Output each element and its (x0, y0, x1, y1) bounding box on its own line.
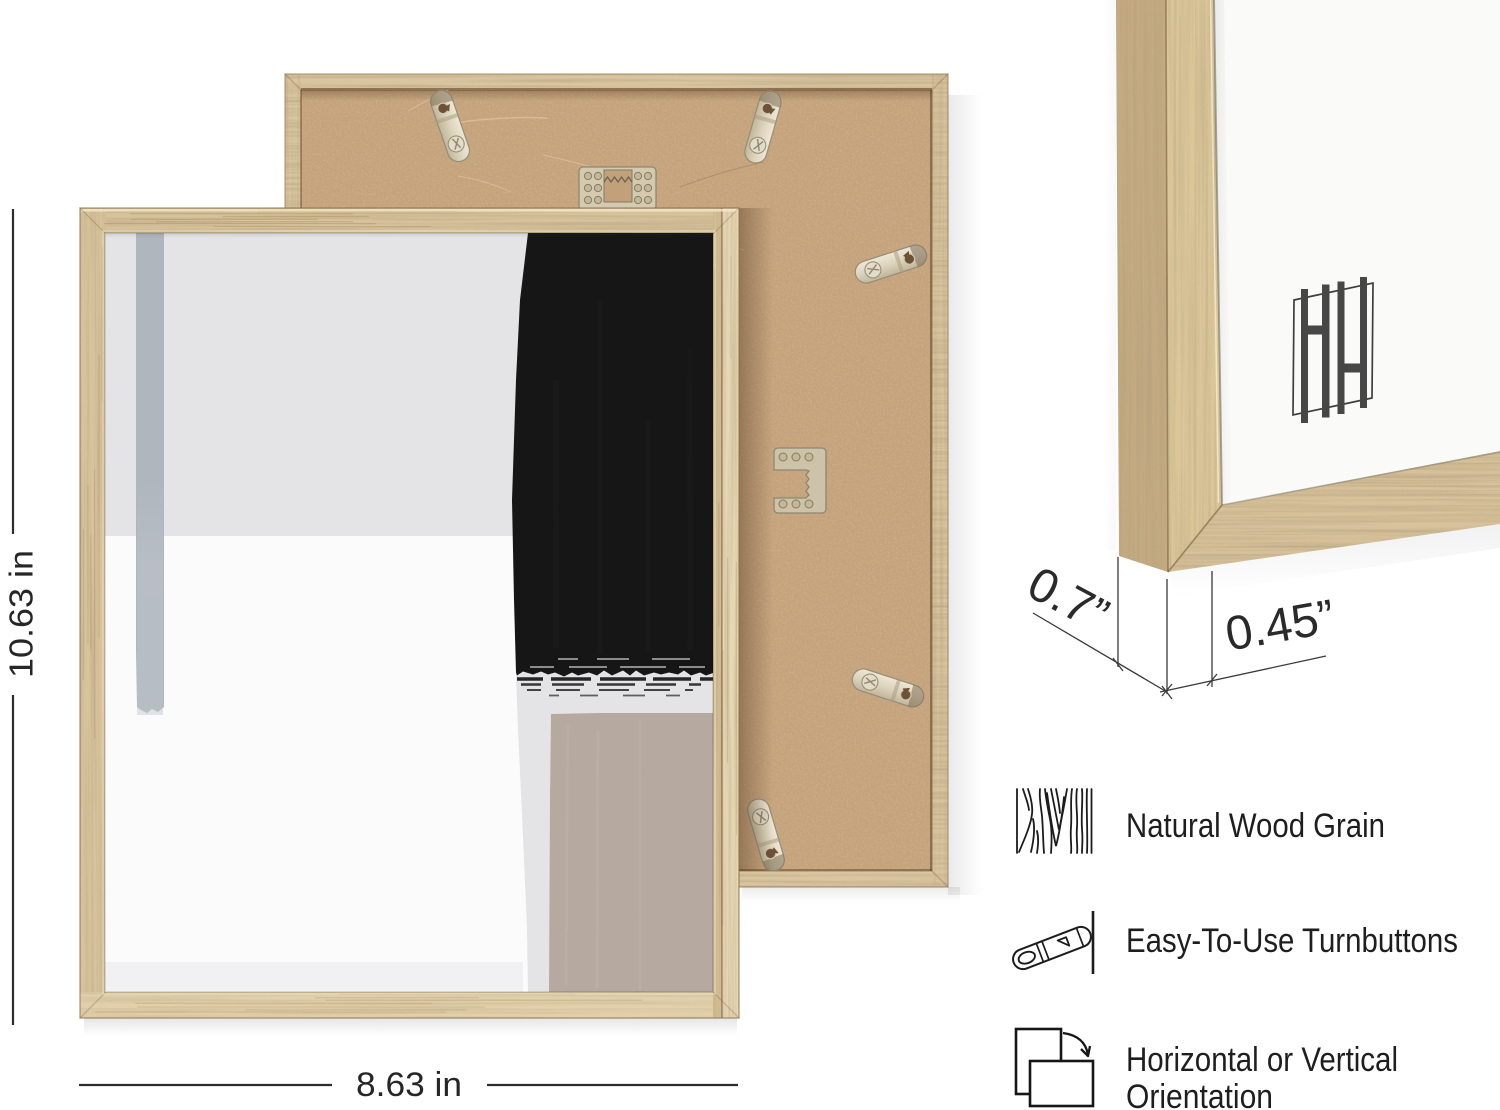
svg-text:Easy-To-Use Turnbuttons: Easy-To-Use Turnbuttons (1126, 922, 1458, 960)
svg-text:8.63 in: 8.63 in (356, 1066, 462, 1104)
svg-text:Orientation: Orientation (1126, 1078, 1273, 1110)
svg-text:Natural Wood Grain: Natural Wood Grain (1126, 807, 1385, 845)
svg-text:Horizontal or Vertical: Horizontal or Vertical (1126, 1041, 1398, 1079)
svg-text:10.63 in: 10.63 in (3, 550, 40, 678)
